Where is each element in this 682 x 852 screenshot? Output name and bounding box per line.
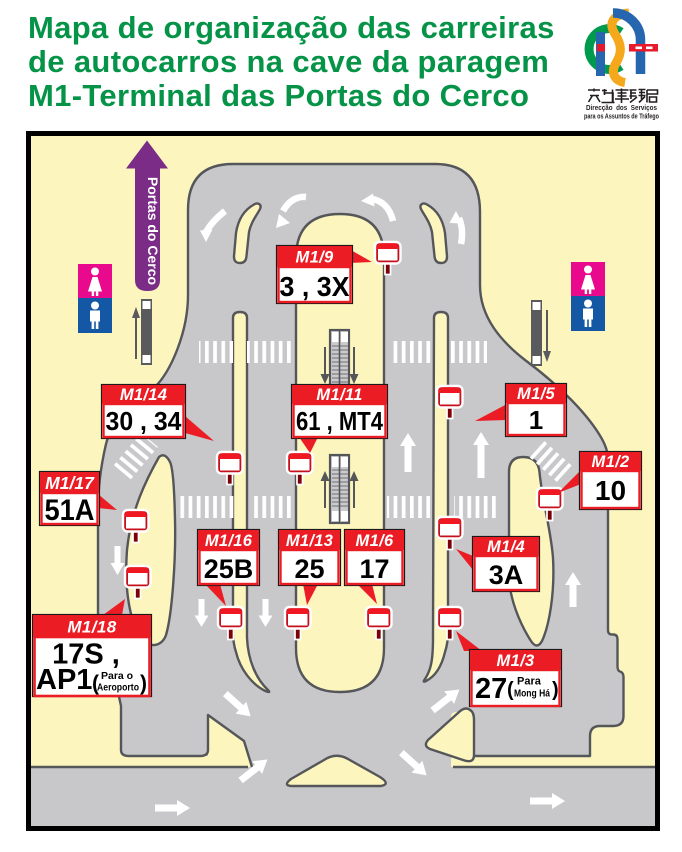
svg-text:Mong Há: Mong Há: [514, 688, 550, 700]
svg-text:M1/3: M1/3: [497, 652, 535, 670]
svg-text:Para o: Para o: [101, 670, 133, 682]
svg-text:3A: 3A: [489, 560, 524, 590]
svg-text:(: (: [507, 679, 514, 701]
svg-text:1: 1: [529, 405, 543, 435]
svg-text:3 , 3X: 3 , 3X: [280, 271, 350, 302]
svg-text:30 , 34: 30 , 34: [106, 406, 183, 436]
svg-text:M1/6: M1/6: [356, 532, 394, 550]
svg-text:M1/18: M1/18: [67, 618, 116, 637]
svg-text:61 , MT4: 61 , MT4: [296, 406, 383, 436]
svg-text:para os Assuntos de Tráfego: para os Assuntos de Tráfego: [584, 112, 659, 121]
svg-text:M1/14: M1/14: [120, 386, 167, 404]
svg-text:27: 27: [475, 673, 507, 705]
svg-text:M1/5: M1/5: [517, 385, 555, 403]
svg-text:25B: 25B: [204, 554, 254, 584]
svg-text:25: 25: [294, 554, 324, 584]
svg-text:Portas do Cerco: Portas do Cerco: [145, 177, 161, 285]
svg-text:): ): [140, 672, 147, 695]
svg-text:Aeroporto: Aeroporto: [97, 682, 139, 694]
svg-text:AP1: AP1: [36, 664, 92, 696]
svg-text:de autocarros na cave da parag: de autocarros na cave da paragem: [28, 44, 549, 79]
svg-text:M1/17: M1/17: [45, 473, 95, 493]
svg-text:51A: 51A: [45, 494, 95, 527]
svg-text:M1/2: M1/2: [592, 453, 630, 471]
svg-text:M1-Terminal das Portas do Cerc: M1-Terminal das Portas do Cerco: [28, 78, 529, 113]
svg-text:M1/13: M1/13: [286, 532, 333, 550]
svg-text:M1/11: M1/11: [316, 386, 362, 404]
svg-text:17: 17: [359, 554, 389, 584]
svg-text:10: 10: [595, 475, 626, 506]
svg-text:): ): [552, 679, 559, 701]
svg-text:M1/16: M1/16: [205, 532, 253, 550]
svg-text:Mapa de organização das carrei: Mapa de organização das carreiras: [28, 10, 555, 45]
svg-text:M1/4: M1/4: [487, 538, 525, 556]
svg-text:M1/9: M1/9: [296, 249, 334, 267]
svg-text:Para: Para: [517, 676, 542, 688]
